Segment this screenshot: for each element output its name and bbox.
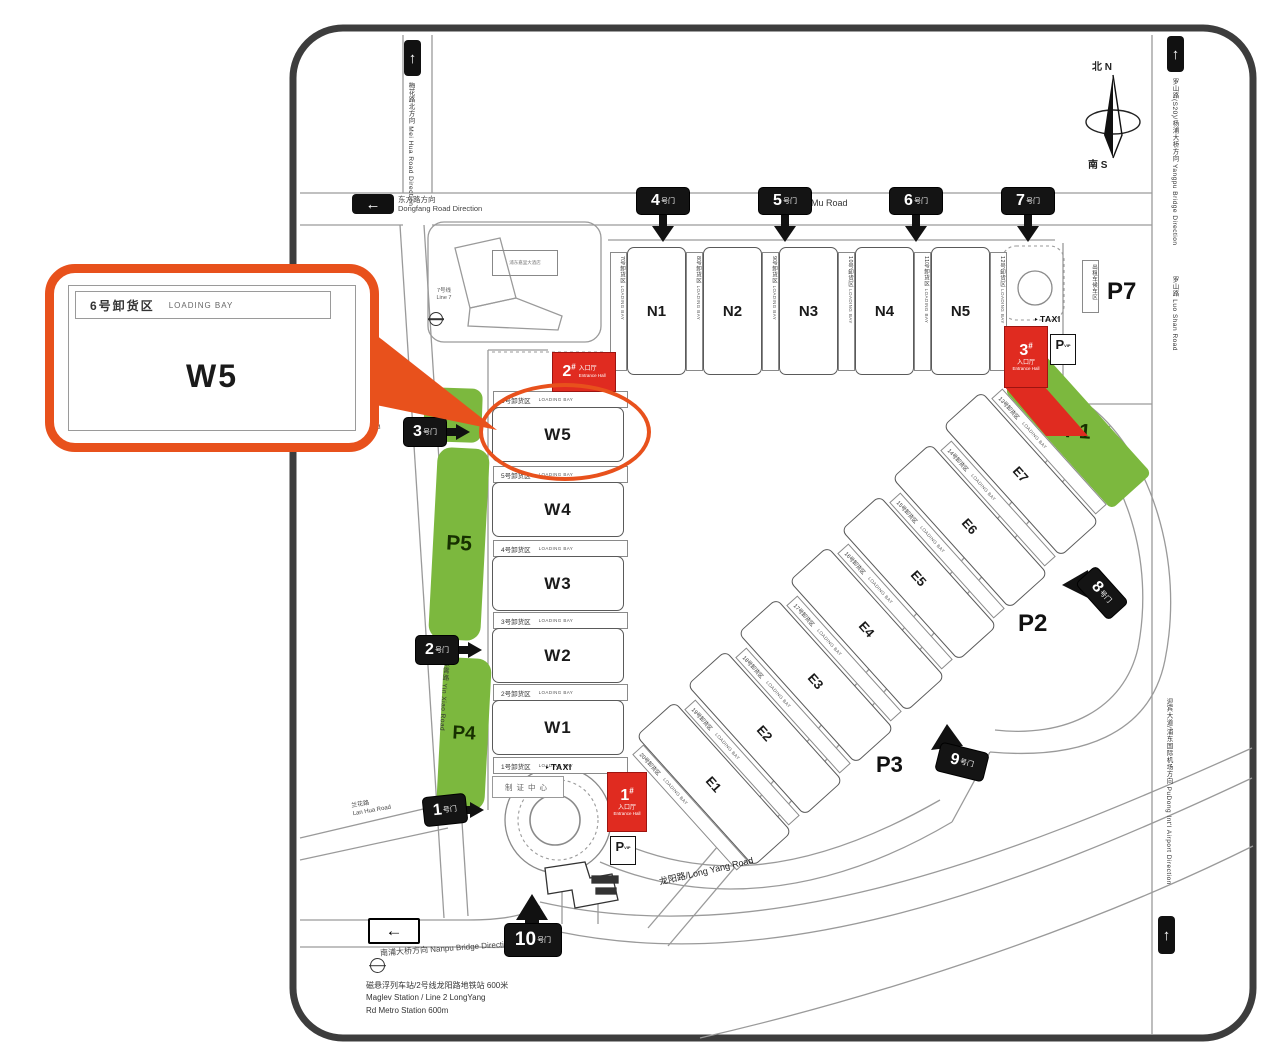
w5-callout: 6号卸货区 LOADING BAY W5 xyxy=(45,264,379,452)
expo-site-map: P6 P5 P4 P1 P7 P2 P3 7号卸货区 LOADING BAY N… xyxy=(0,0,1280,1055)
w5-highlight-ellipse xyxy=(479,383,651,481)
w5-callout-bay-label-en: LOADING BAY xyxy=(169,301,234,310)
w5-callout-bay-label: 6号卸货区 xyxy=(90,297,155,314)
w5-callout-hall-label: W5 xyxy=(69,322,355,430)
w5-callout-loading-bay: 6号卸货区 LOADING BAY xyxy=(75,291,331,319)
callout-tail-layer xyxy=(0,0,1280,1055)
w5-callout-hall-outline: 6号卸货区 LOADING BAY W5 xyxy=(68,285,356,431)
